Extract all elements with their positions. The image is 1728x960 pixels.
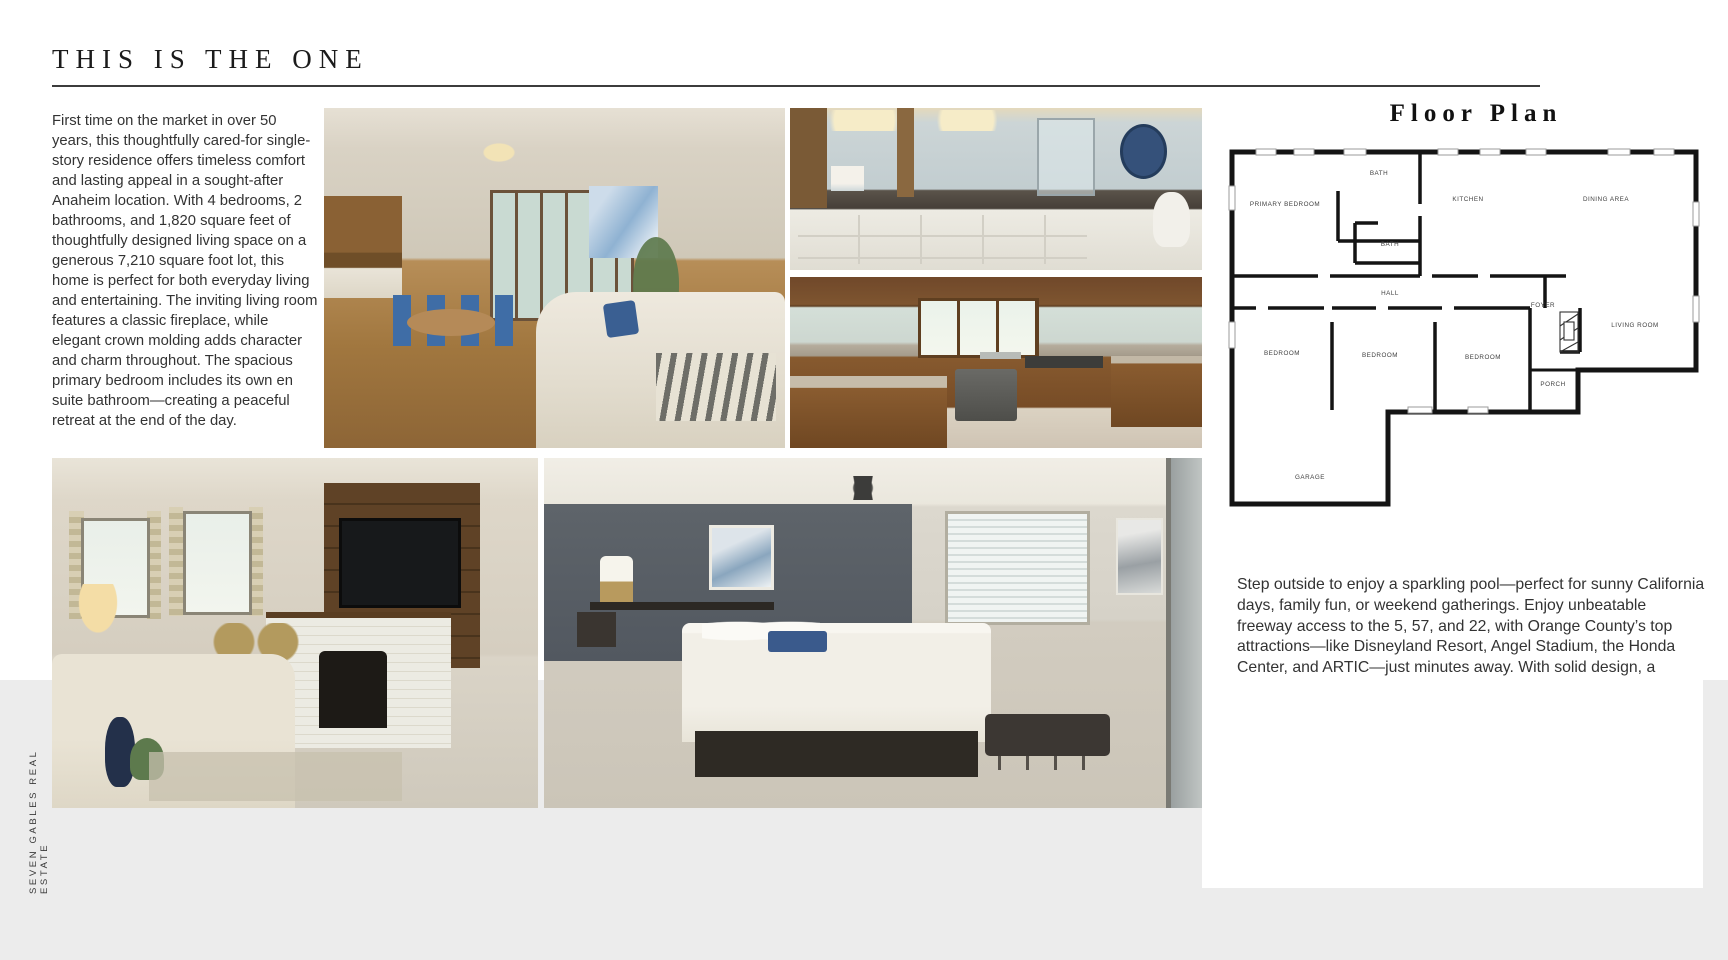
room-label-foyer: FOYER: [1531, 302, 1555, 309]
room-label-bath-1: BATH: [1370, 170, 1388, 177]
photo-family-room-fireplace: [52, 458, 538, 808]
toilet: [1153, 192, 1190, 247]
photo-primary-bedroom: [544, 458, 1202, 808]
dishwasher: [955, 369, 1017, 420]
room-label-porch: PORCH: [1540, 381, 1565, 388]
room-label-primary-bedroom: PRIMARY BEDROOM: [1250, 201, 1320, 208]
console-table: [590, 602, 774, 611]
kitchen-window: [918, 298, 1039, 359]
nightstand: [577, 612, 616, 647]
ceiling-fan: [814, 476, 913, 501]
blue-pillow: [768, 631, 827, 652]
room-label-garage: GARAGE: [1295, 474, 1325, 481]
window: [183, 511, 252, 615]
intro-paragraph: First time on the market in over 50 year…: [52, 111, 320, 431]
wall-art: [709, 525, 774, 591]
mirrored-closet: [1166, 458, 1202, 808]
vanity-lights: [823, 110, 1029, 131]
room-label-bedroom-3: BEDROOM: [1465, 354, 1501, 361]
island-counter: [790, 376, 947, 448]
round-mirror: [1120, 124, 1167, 179]
floor-plan-title: Floor Plan: [1240, 100, 1712, 128]
floor-plan-drawing: PRIMARY BEDROOM BATH KITCHEN DINING AREA…: [1228, 146, 1700, 510]
flyer-page: THIS IS THE ONE First time on the market…: [0, 0, 1728, 960]
dining-table: [407, 309, 495, 336]
sink: [980, 352, 1021, 359]
window-blinds: [945, 511, 1089, 626]
room-label-living-room: LIVING ROOM: [1611, 322, 1658, 329]
vanity-drawers: [798, 215, 1086, 264]
striped-throw: [656, 353, 776, 421]
wood-cabinet: [790, 108, 827, 208]
bench-legs: [998, 756, 1097, 770]
photo-kitchen: [790, 277, 1202, 448]
tv: [339, 518, 462, 608]
room-label-bedroom-1: BEDROOM: [1264, 350, 1300, 357]
chandelier: [476, 139, 522, 166]
kitchen-cabinets: [324, 196, 402, 298]
photo-living-dining-room: [324, 108, 785, 448]
room-label-dining-area: DINING AREA: [1583, 196, 1629, 203]
curtain: [169, 507, 184, 616]
title-divider: [52, 85, 1540, 87]
room-label-hall: HALL: [1381, 290, 1399, 297]
firebox: [319, 651, 387, 728]
table-lamp: [76, 584, 120, 637]
blue-pillow: [603, 300, 640, 338]
bedside-lamp: [600, 556, 633, 602]
right-panel-background: [1202, 680, 1703, 888]
area-rug: [149, 752, 402, 801]
room-label-kitchen: KITCHEN: [1452, 196, 1483, 203]
page-title: THIS IS THE ONE: [52, 44, 369, 75]
towels: [831, 166, 864, 190]
shower-door: [1037, 118, 1095, 197]
photo-bathroom: [790, 108, 1202, 270]
lower-cabinets: [1111, 356, 1202, 428]
bed-frame: [695, 731, 978, 777]
wood-trim: [897, 108, 913, 197]
brand-vertical-text: SEVEN GABLES REAL ESTATE: [28, 712, 44, 894]
bench: [985, 714, 1110, 756]
cooktop: [1025, 356, 1103, 368]
wall-art: [1116, 518, 1163, 596]
room-label-bedroom-2: BEDROOM: [1362, 352, 1398, 359]
room-label-bath-2: BATH: [1381, 241, 1399, 248]
